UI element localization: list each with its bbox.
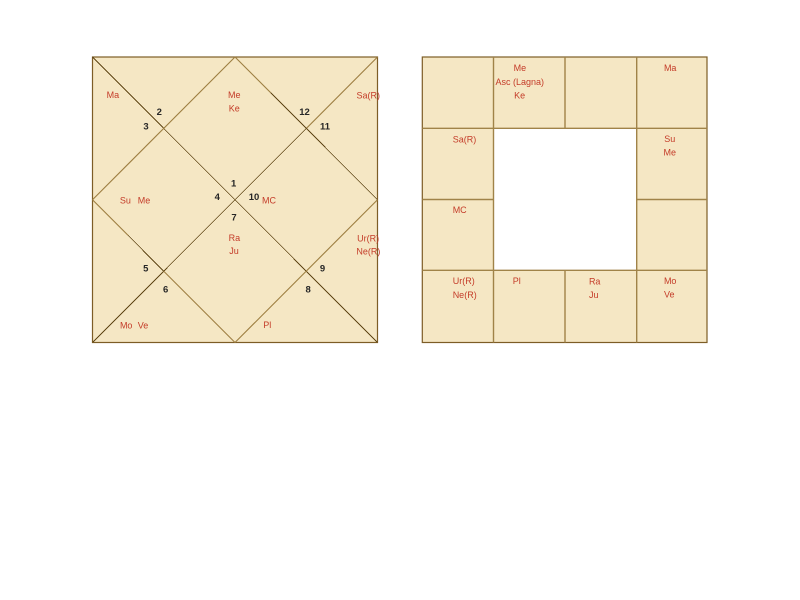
svg-text:Ju: Ju xyxy=(589,290,599,300)
svg-text:9: 9 xyxy=(320,264,325,275)
svg-text:11: 11 xyxy=(320,122,331,133)
svg-text:7: 7 xyxy=(231,213,236,224)
svg-text:Mo: Mo xyxy=(664,276,677,286)
svg-text:MC: MC xyxy=(262,196,276,206)
svg-text:6: 6 xyxy=(163,285,168,296)
svg-text:5: 5 xyxy=(143,263,149,274)
svg-text:Sa(R): Sa(R) xyxy=(356,90,380,100)
svg-text:Ur(R): Ur(R) xyxy=(453,276,475,286)
svg-text:Ra: Ra xyxy=(229,233,241,243)
svg-text:Su: Su xyxy=(120,196,131,206)
svg-text:Ju: Ju xyxy=(229,246,239,256)
svg-text:10: 10 xyxy=(249,192,260,203)
svg-text:Ma: Ma xyxy=(107,90,120,100)
svg-text:Mo: Mo xyxy=(120,321,133,331)
svg-text:2: 2 xyxy=(157,107,162,118)
svg-text:8: 8 xyxy=(305,285,310,296)
svg-text:Ke: Ke xyxy=(514,91,525,101)
svg-text:Ra: Ra xyxy=(589,276,601,286)
svg-text:Ne(R): Ne(R) xyxy=(453,290,477,300)
svg-text:12: 12 xyxy=(299,107,310,118)
svg-text:Pl: Pl xyxy=(263,320,271,330)
svg-text:Me: Me xyxy=(514,63,527,73)
svg-text:Su: Su xyxy=(664,134,675,144)
svg-text:Ve: Ve xyxy=(664,290,675,300)
svg-text:3: 3 xyxy=(143,121,148,132)
svg-text:Ma: Ma xyxy=(664,63,677,73)
svg-text:Ve: Ve xyxy=(138,321,149,331)
svg-text:1: 1 xyxy=(231,179,237,190)
svg-text:Sa(R): Sa(R) xyxy=(453,134,477,144)
svg-text:Me: Me xyxy=(664,147,677,157)
svg-text:Ur(R): Ur(R) xyxy=(357,233,379,243)
svg-text:Pl: Pl xyxy=(513,276,521,286)
svg-text:Asc (Lagna): Asc (Lagna) xyxy=(496,77,545,87)
svg-text:MC: MC xyxy=(453,205,467,215)
svg-text:Me: Me xyxy=(138,196,151,206)
svg-text:Ne(R): Ne(R) xyxy=(356,246,380,256)
svg-text:Ke: Ke xyxy=(229,104,240,114)
svg-text:Me: Me xyxy=(228,90,241,100)
svg-text:4: 4 xyxy=(215,192,221,203)
